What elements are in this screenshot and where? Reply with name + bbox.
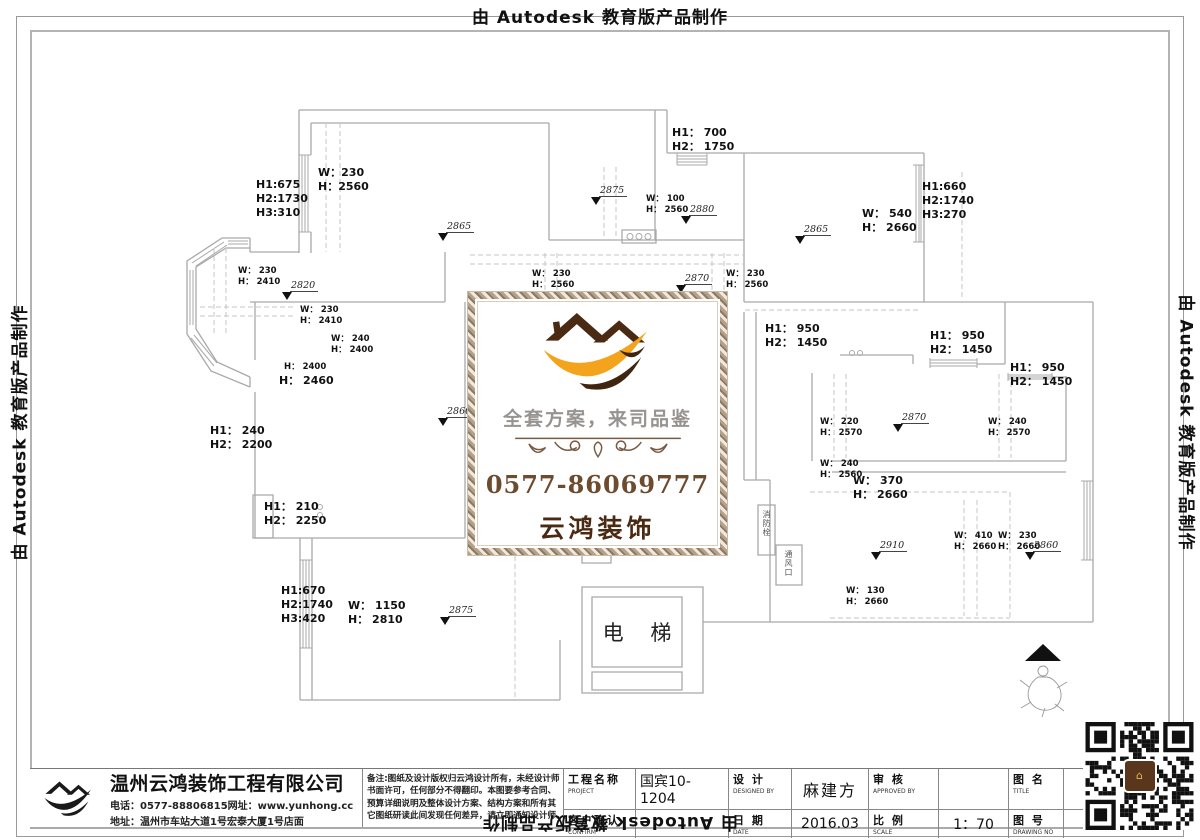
autodesk-watermark-bottom: 由 Autodesk 教育版产品制作: [455, 812, 765, 837]
company-address: 地址：温州市车站大道1号宏泰大厦1号店面: [110, 813, 353, 828]
cad-drawing-sheet: H1:675H2:1730H3:310W：230H：2560H1： 700H2：…: [0, 0, 1200, 840]
dimension-label: W： 410H： 2660: [954, 531, 996, 553]
dimension-label: H： 2400: [284, 362, 326, 373]
level-marker: 2865: [795, 217, 831, 244]
date-value-cell: 2016.03: [792, 810, 869, 838]
title-label-cell: 图 名 TITLE: [1009, 769, 1064, 809]
autodesk-watermark-top: 由 Autodesk 教育版产品制作: [472, 3, 728, 28]
promo-inner-frame: 全套方案，来司品鉴 0577-86069777 云鸿装饰: [477, 301, 718, 546]
dimension-label: H1:675H2:1730H3:310: [256, 178, 308, 219]
company-name: 温州云鸿装饰工程有限公司: [110, 769, 353, 796]
level-marker: 2865: [438, 214, 474, 241]
dimension-label: W： 240H： 2400: [331, 334, 373, 356]
dimension-label: W： 370H： 2660: [853, 474, 908, 502]
level-marker: 2910: [871, 533, 907, 560]
dimension-label: W： 230H： 2410: [238, 266, 280, 288]
level-marker: 2870: [676, 266, 712, 293]
dimension-label: H： 2460: [279, 374, 334, 388]
approved-value-cell: [939, 769, 1009, 809]
company-promo-block: 全套方案，来司品鉴 0577-86069777 云鸿装饰: [468, 292, 727, 555]
ornament-divider: [503, 431, 693, 462]
dimension-label: H1:660H2:1740H3:270: [922, 180, 974, 221]
dimension-label: W： 220H： 2570: [820, 417, 862, 439]
qr-center-logo: ⌂: [1123, 759, 1157, 793]
dimension-label: W： 230H： 2560: [532, 269, 574, 291]
dimension-label: W： 1150H： 2810: [348, 599, 406, 627]
fire-hydrant-label: 消防栓: [761, 510, 772, 537]
level-marker: 2860: [1025, 533, 1061, 560]
company-contact: 电话：0577-88806815网址：www.yunhong.cc: [110, 797, 353, 812]
vent-label: 通风口: [783, 550, 794, 577]
project-label-cell: 工程名称 PROJECT: [564, 769, 636, 809]
dimension-label: H1： 240H2： 2200: [210, 424, 272, 452]
level-marker: 2875: [591, 178, 627, 205]
company-logo-mark: [38, 775, 100, 821]
dimension-label: H1:670H2:1740H3:420: [281, 584, 333, 625]
drawing-no-label-cell: 图 号 DRAWING NO: [1009, 810, 1064, 838]
dimension-label: W： 540H： 2660: [862, 207, 917, 235]
dimension-label: H1： 700H2： 1750: [672, 126, 734, 154]
dimension-label: H1： 950H2： 1450: [765, 322, 827, 350]
approved-label-cell: 审 核 APPROVED BY: [869, 769, 939, 809]
table-row: 工程名称 PROJECT 国宾10-1204 设 计 DESIGNED BY 麻…: [564, 769, 1170, 809]
dimension-label: H1： 950H2： 1450: [1010, 361, 1072, 389]
level-marker: 2875: [440, 598, 476, 625]
level-marker: 2820: [282, 273, 318, 300]
dimension-label: H1： 210H2： 2250: [264, 500, 326, 528]
company-section: 温州云鸿装饰工程有限公司 电话：0577-88806815网址：www.yunh…: [30, 769, 362, 827]
qr-code: ⌂: [1083, 722, 1196, 830]
dimension-label: W： 240H： 2570: [988, 417, 1030, 439]
autodesk-watermark-left: 由 Autodesk 教育版产品制作: [6, 283, 31, 583]
level-marker: 2880: [681, 197, 717, 224]
dimension-label: W： 230H： 2560: [726, 269, 768, 291]
promo-slogan: 全套方案，来司品鉴: [503, 404, 692, 431]
dimension-label: H1： 950H2： 1450: [930, 329, 992, 357]
scale-label-cell: 比 例 SCALE: [869, 810, 939, 838]
level-marker: 2870: [893, 405, 929, 432]
designed-value-cell: 麻建方: [792, 769, 869, 809]
dimension-label: W： 130H： 2660: [846, 586, 888, 608]
elevator-room-label: 电 梯: [592, 597, 682, 667]
yunhong-logo: [523, 302, 673, 398]
designed-label-cell: 设 计 DESIGNED BY: [729, 769, 792, 809]
scale-value-cell: 1：70: [939, 810, 1009, 838]
project-value-cell: 国宾10-1204: [636, 769, 729, 809]
promo-phone: 0577-86069777: [486, 470, 709, 499]
dimension-label: W： 230H： 2410: [300, 305, 342, 327]
promo-brand-name: 云鸿装饰: [539, 509, 655, 545]
autodesk-watermark-right: 由 Autodesk 教育版产品制作: [1176, 273, 1200, 573]
dimension-label: W：230H：2560: [318, 166, 369, 194]
